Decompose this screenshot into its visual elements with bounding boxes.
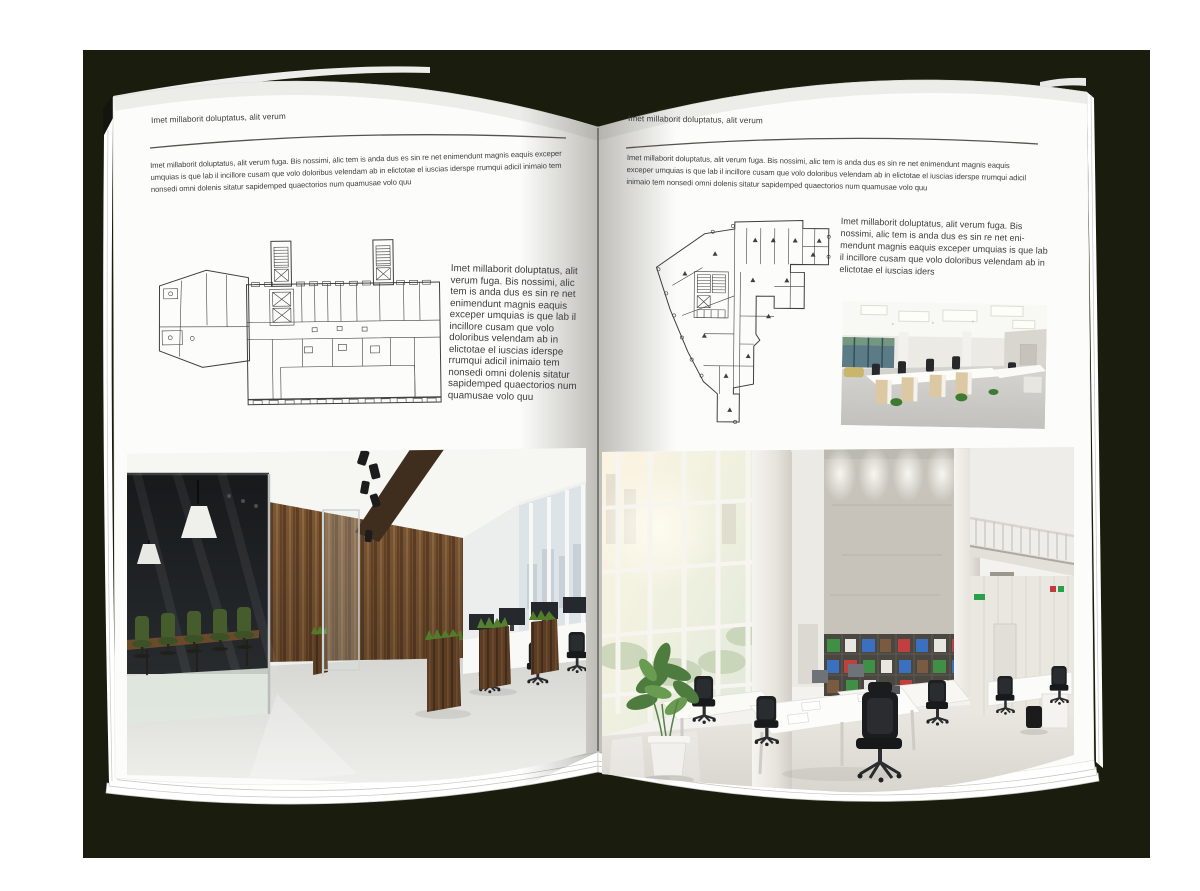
left-office-photo <box>127 444 586 794</box>
right-page-side-paragraph: Imet millaborit doluptatus, alit verum f… <box>839 216 1049 282</box>
left-header-rule <box>148 126 568 152</box>
waste-bin <box>1026 706 1042 728</box>
small-office-photo <box>841 301 1047 429</box>
right-floor-plan-drawing <box>641 215 839 429</box>
glass-partition <box>323 510 359 676</box>
right-header-rule <box>624 128 1040 154</box>
plan-markers <box>681 237 822 413</box>
meeting-room <box>127 474 275 724</box>
right-office-photo <box>602 444 1074 796</box>
left-floor-plan-drawing <box>151 225 446 417</box>
exit-sign <box>974 594 985 600</box>
magazine-spread-mockup: Imet millaborit doluptatus, alit verum I… <box>0 0 1200 891</box>
left-page-side-paragraph: Imet millaborit doluptatus, alit verum f… <box>448 263 587 405</box>
